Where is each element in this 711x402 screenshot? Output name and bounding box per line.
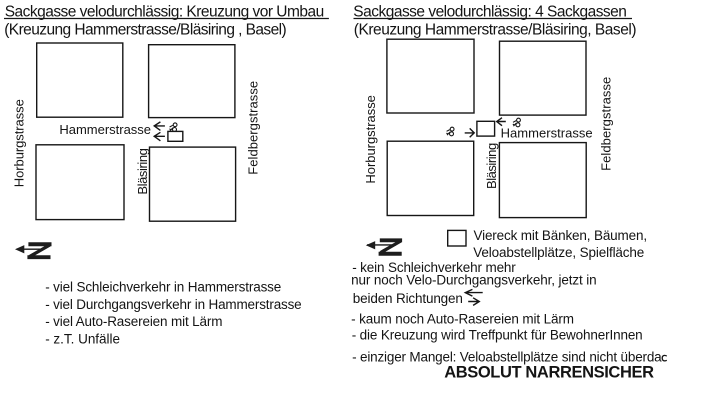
- svg-text:nur noch Velo-Durchgangsverkeh: nur noch Velo-Durchgangsverkehr, jetzt i…: [351, 273, 596, 288]
- svg-text:- kaum noch Auto-Rasereien mit: - kaum noch Auto-Rasereien mit Lärm: [351, 312, 574, 327]
- svg-text:Bläsiring: Bläsiring: [135, 148, 150, 195]
- svg-text:Horburgstrasse: Horburgstrasse: [363, 95, 378, 184]
- svg-text:Horburgstrasse: Horburgstrasse: [11, 99, 26, 187]
- svg-text:Bläsiring: Bläsiring: [484, 143, 499, 189]
- svg-text:- viel Durchgangsverkehr in Ha: - viel Durchgangsverkehr in Hammerstrass…: [45, 297, 302, 312]
- svg-text:Feldbergstrasse: Feldbergstrasse: [599, 77, 614, 171]
- svg-text:Hammerstrasse: Hammerstrasse: [59, 122, 151, 137]
- svg-text:Hammerstrasse: Hammerstrasse: [501, 125, 593, 140]
- svg-text:- z.T. Unfälle: - z.T. Unfälle: [45, 332, 120, 347]
- svg-text:ABSOLUT NARRENSICHER: ABSOLUT NARRENSICHER: [444, 364, 654, 382]
- svg-text:Viereck mit Bänken, Bäumen,: Viereck mit Bänken, Bäumen,: [474, 228, 648, 243]
- svg-text:(Kreuzung Hammerstrasse/Bläsir: (Kreuzung Hammerstrasse/Bläsiring, Basel…: [354, 21, 637, 38]
- svg-text:- einziger Mangel: Veloabstell: - einziger Mangel: Veloabstellplätze sin…: [352, 349, 662, 364]
- svg-text:- die Kreuzung wird Treffpunkt: - die Kreuzung wird Treffpunkt für Bewoh…: [352, 328, 643, 343]
- svg-text:- viel Auto-Rasereien mit Lärm: - viel Auto-Rasereien mit Lärm: [45, 314, 222, 329]
- svg-text:(Kreuzung Hammerstrasse/Bläsir: (Kreuzung Hammerstrasse/Bläsiring , Base…: [4, 21, 287, 38]
- svg-text:Veloabstellplätze, Spielfläche: Veloabstellplätze, Spielfläche: [473, 245, 644, 260]
- svg-text:- viel Schleichverkehr in Hamm: - viel Schleichverkehr in Hammerstrasse: [45, 280, 281, 295]
- svg-text:Feldbergstrasse: Feldbergstrasse: [245, 81, 260, 175]
- svg-text:beiden Richtungen: beiden Richtungen: [353, 291, 463, 306]
